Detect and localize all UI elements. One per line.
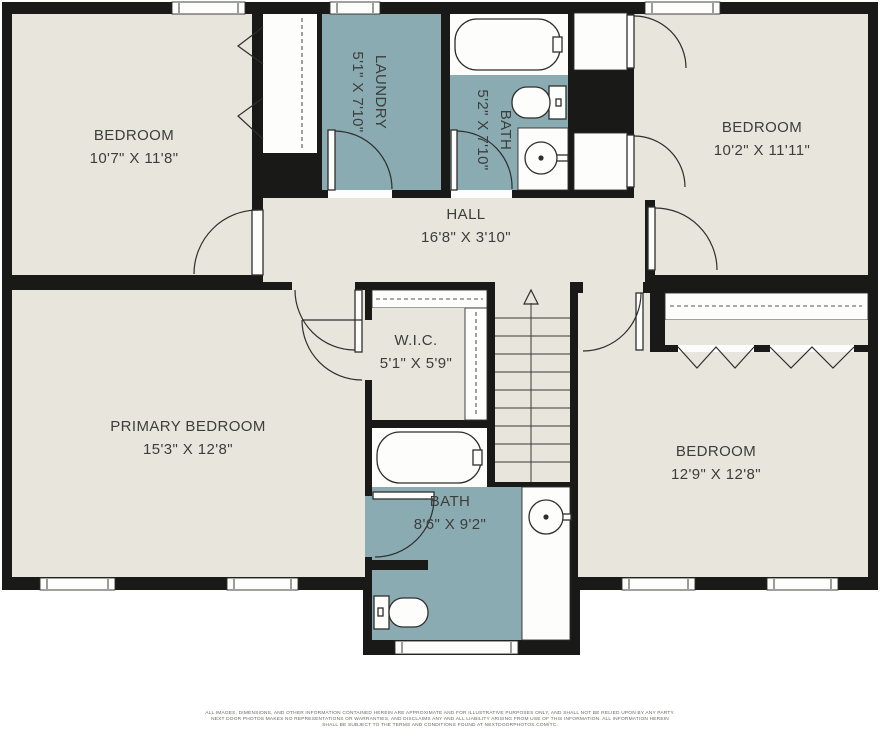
- room-dims: 10'7" X 11'8": [90, 147, 179, 170]
- room-label-bedroom-tr: BEDROOM 10'2" X 11'11": [714, 116, 811, 162]
- room-name: BEDROOM: [714, 116, 811, 139]
- room-name: BATH: [414, 490, 487, 513]
- room-name: LAUNDRY: [369, 51, 392, 132]
- sink-top: [518, 128, 568, 190]
- room-name: BEDROOM: [671, 440, 761, 463]
- window: [767, 578, 838, 590]
- room-dims: 5'1" X 7'10": [346, 51, 369, 132]
- room-name: BEDROOM: [90, 124, 179, 147]
- window: [172, 2, 245, 14]
- room-name: PRIMARY BEDROOM: [110, 415, 265, 438]
- room-name: HALL: [421, 203, 511, 226]
- window: [645, 2, 720, 14]
- room-label-bath-top: BATH 5'2" X 7'10": [471, 89, 517, 170]
- stairs: [495, 290, 570, 482]
- room-label-laundry: LAUNDRY 5'1" X 7'10": [346, 51, 392, 132]
- toilet-top: [512, 86, 566, 119]
- window: [395, 641, 518, 654]
- room-dims: 8'6" X 9'2": [414, 513, 487, 536]
- window: [622, 578, 695, 590]
- room-dims: 10'2" X 11'11": [714, 139, 811, 162]
- room-label-hall: HALL 16'8" X 3'10": [421, 203, 511, 249]
- room-label-bedroom-br: BEDROOM 12'9" X 12'8": [671, 440, 761, 486]
- room-dims: 5'1" X 5'9": [380, 352, 453, 375]
- room-dims: 16'8" X 3'10": [421, 226, 511, 249]
- room-dims: 15'3" X 12'8": [110, 438, 265, 461]
- window: [227, 578, 298, 590]
- room-label-wic: W.I.C. 5'1" X 5'9": [380, 329, 453, 375]
- room-label-bedroom-tl: BEDROOM 10'7" X 11'8": [90, 124, 179, 170]
- room-dims: 5'2" X 7'10": [471, 89, 494, 170]
- window: [330, 2, 380, 14]
- room-label-primary-bedroom: PRIMARY BEDROOM 15'3" X 12'8": [110, 415, 265, 461]
- bathtub-bottom: [377, 432, 482, 483]
- floor-plan-page: BEDROOM 10'7" X 11'8" LAUNDRY 5'1" X 7'1…: [0, 0, 880, 734]
- window: [40, 578, 115, 590]
- disclaimer-line: SHALL BE SUBJECT TO THE TERMS AND CONDIT…: [0, 723, 880, 729]
- bathtub-top: [455, 19, 562, 70]
- room-label-bath-bottom: BATH 8'6" X 9'2": [414, 490, 487, 536]
- room-name: BATH: [494, 89, 517, 170]
- toilet-bottom: [374, 596, 428, 629]
- room-dims: 12'9" X 12'8": [671, 463, 761, 486]
- room-name: W.I.C.: [380, 329, 453, 352]
- disclaimer-text: ALL IMAGES, DIMENSIONS, AND OTHER INFORM…: [0, 711, 880, 730]
